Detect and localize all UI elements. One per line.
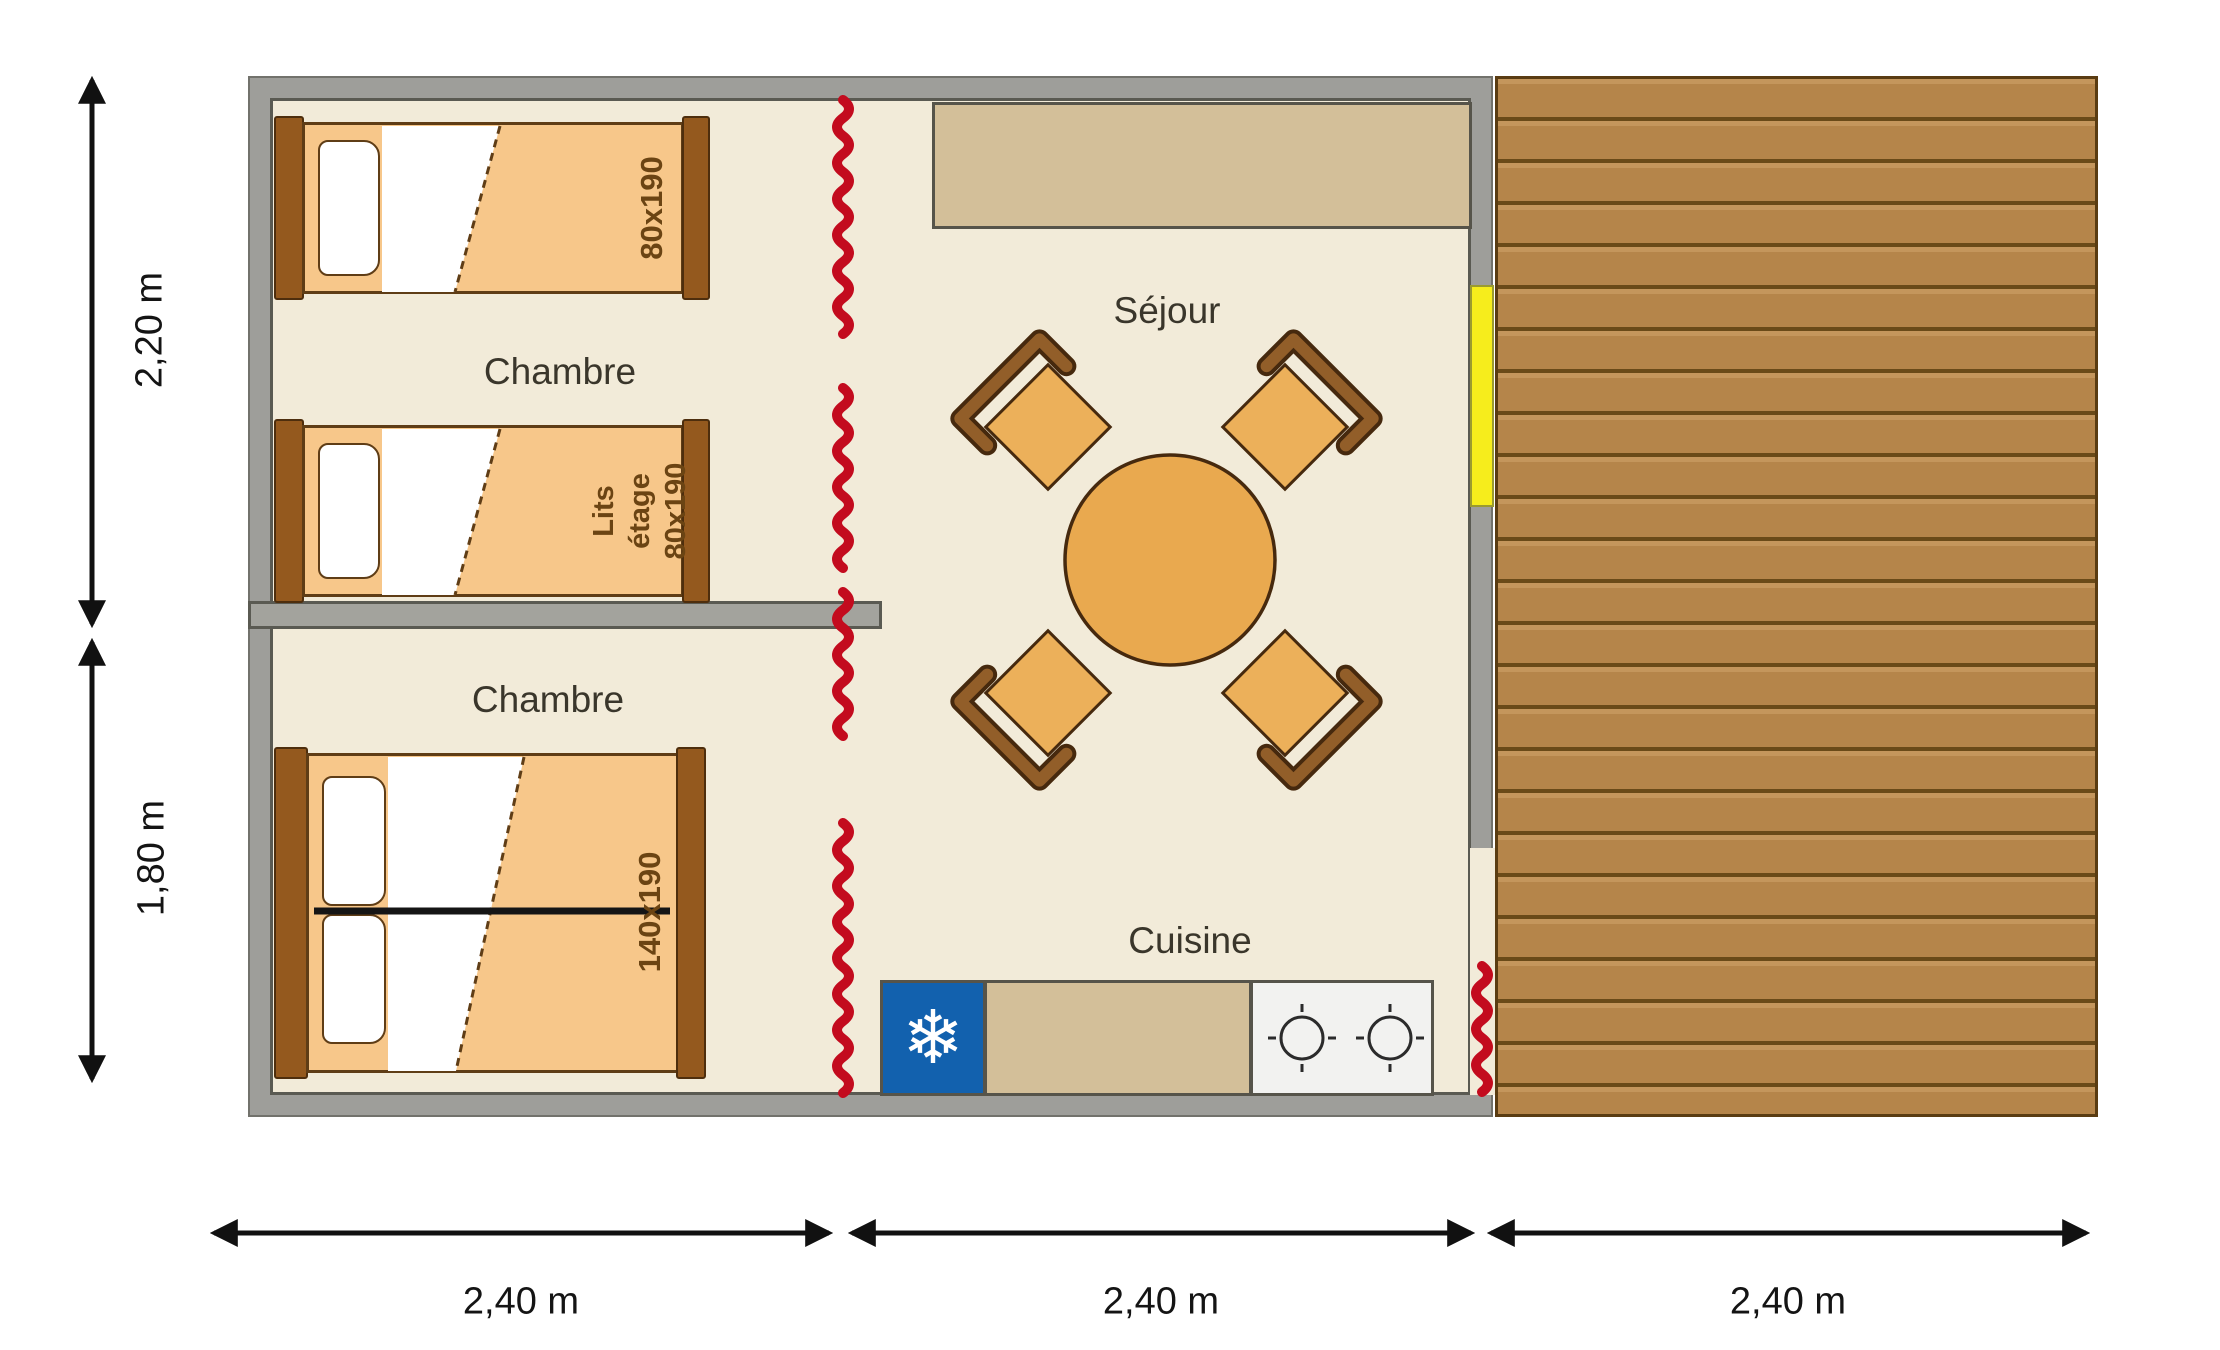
bed1-pillow [318, 140, 380, 276]
bed1-footboard [682, 116, 710, 300]
dim-label-side-top: 2,20 m [129, 272, 172, 388]
sideboard-counter [932, 102, 1472, 229]
bed3-headboard [274, 747, 308, 1079]
dim-label-side-bottom: 1,80 m [131, 800, 174, 916]
wood-deck [1495, 76, 2098, 1117]
stove [1250, 980, 1434, 1096]
bed3-size-label: 140x190 [632, 852, 668, 973]
bed2-headboard [274, 419, 304, 603]
bed2-label-line1: Lits [586, 463, 622, 560]
bedroom-divider-wall [248, 601, 882, 629]
bed2-label-line2: étage [622, 463, 658, 560]
bed2-pillow [318, 443, 380, 579]
right-wall-opening [1470, 848, 1495, 1095]
bed3-pillow-top [322, 776, 386, 906]
room-label-kitchen: Cuisine [1128, 920, 1251, 962]
kitchen-counter [984, 980, 1252, 1096]
room-label-bedroom-bottom: Chambre [472, 679, 624, 721]
bed3-footboard [676, 747, 706, 1079]
bed1-size-label: 80x190 [634, 156, 670, 259]
dim-label-bottom-center: 2,40 m [1103, 1281, 1219, 1324]
snowflake-icon: ❄ [883, 983, 983, 1093]
deck-door-yellow [1470, 285, 1494, 507]
dim-label-bottom-right: 2,40 m [1730, 1281, 1846, 1324]
bed2-size-label: Lits étage 80x190 [586, 463, 694, 560]
room-label-living: Séjour [1114, 290, 1221, 332]
dim-label-bottom-left: 2,40 m [463, 1281, 579, 1324]
room-label-bedroom-top: Chambre [484, 351, 636, 393]
bed2-label-line3: 80x190 [658, 463, 694, 560]
floor-plan: ❄ [0, 0, 2220, 1350]
bed3-pillow-bottom [322, 914, 386, 1044]
bed1-headboard [274, 116, 304, 300]
fridge: ❄ [880, 980, 986, 1096]
